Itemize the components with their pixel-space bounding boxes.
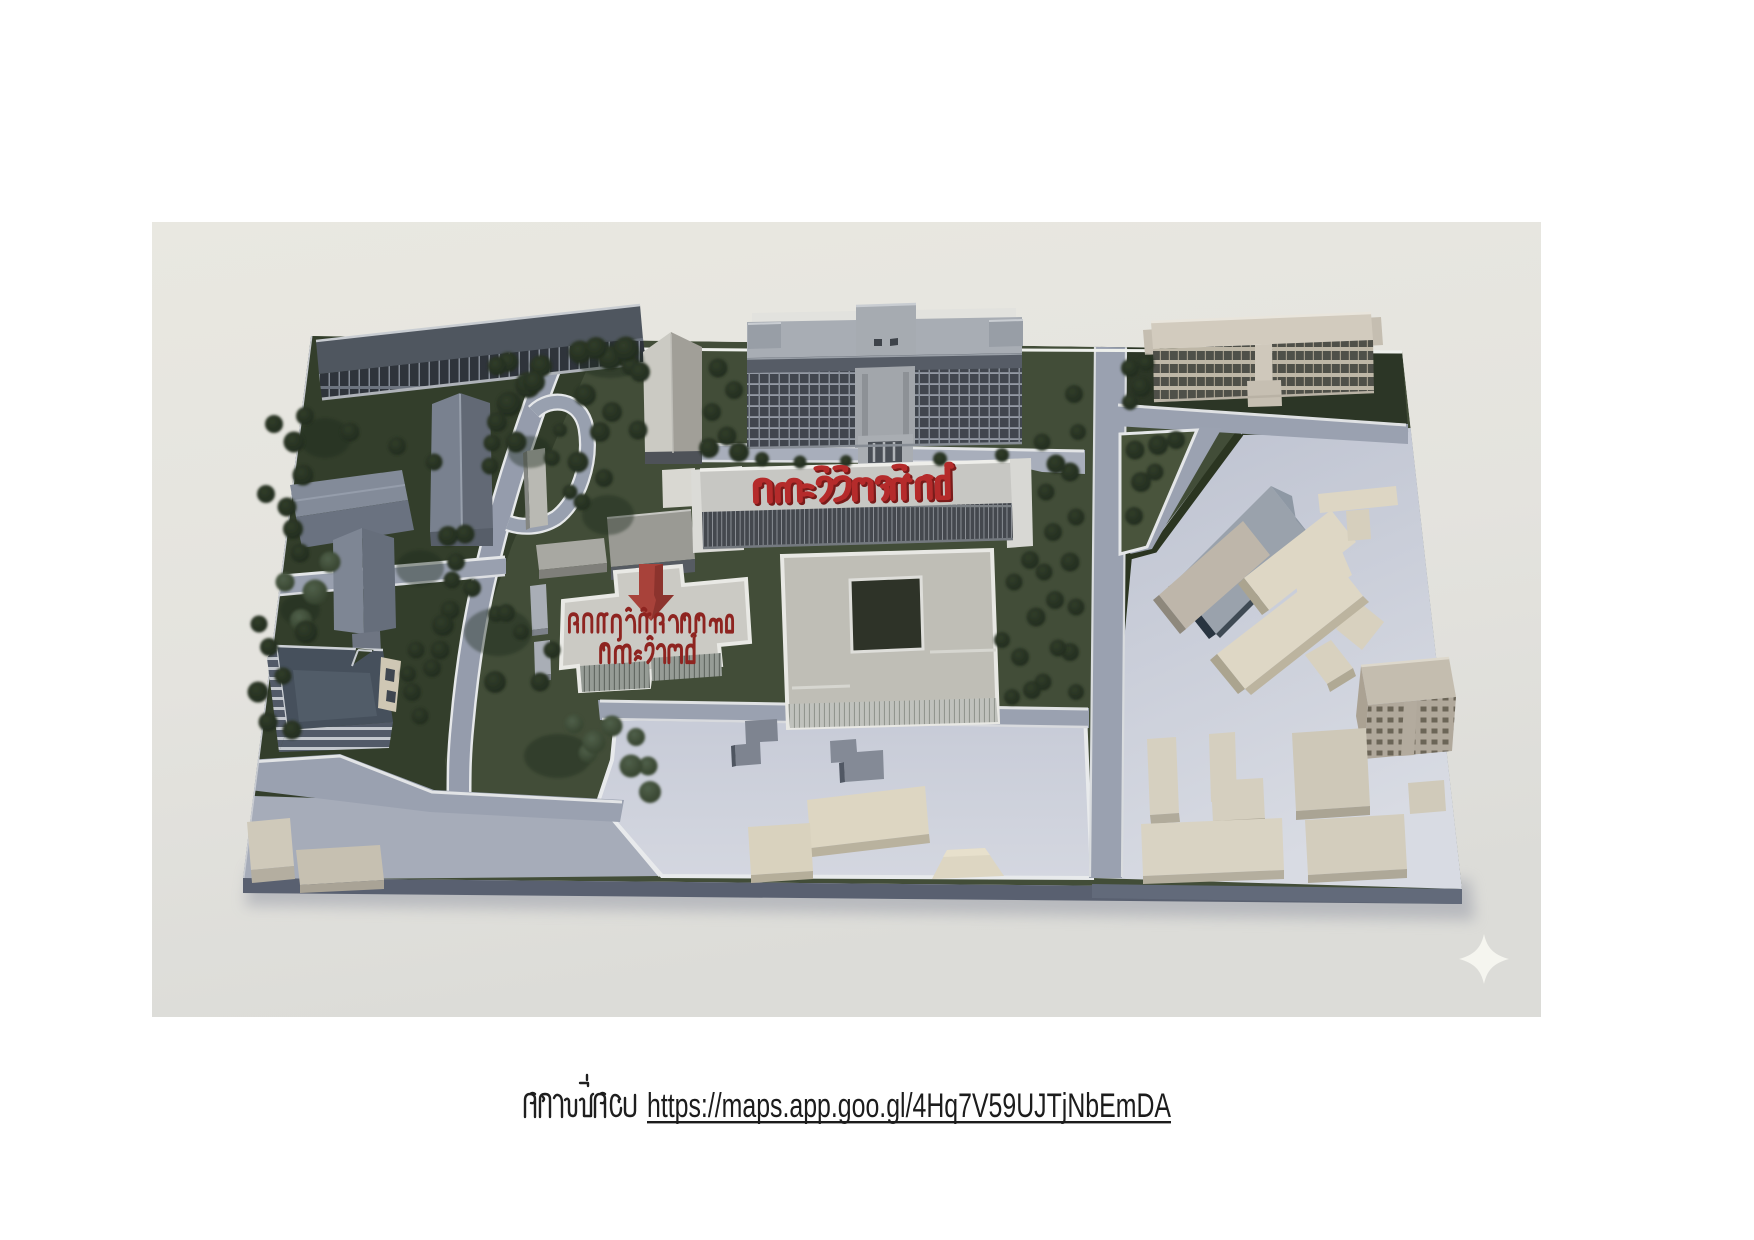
svg-text:https://maps.app.goo.gl/4Hq7V5: https://maps.app.goo.gl/4Hq7V59UJTjNbEmD… [647,1087,1171,1125]
